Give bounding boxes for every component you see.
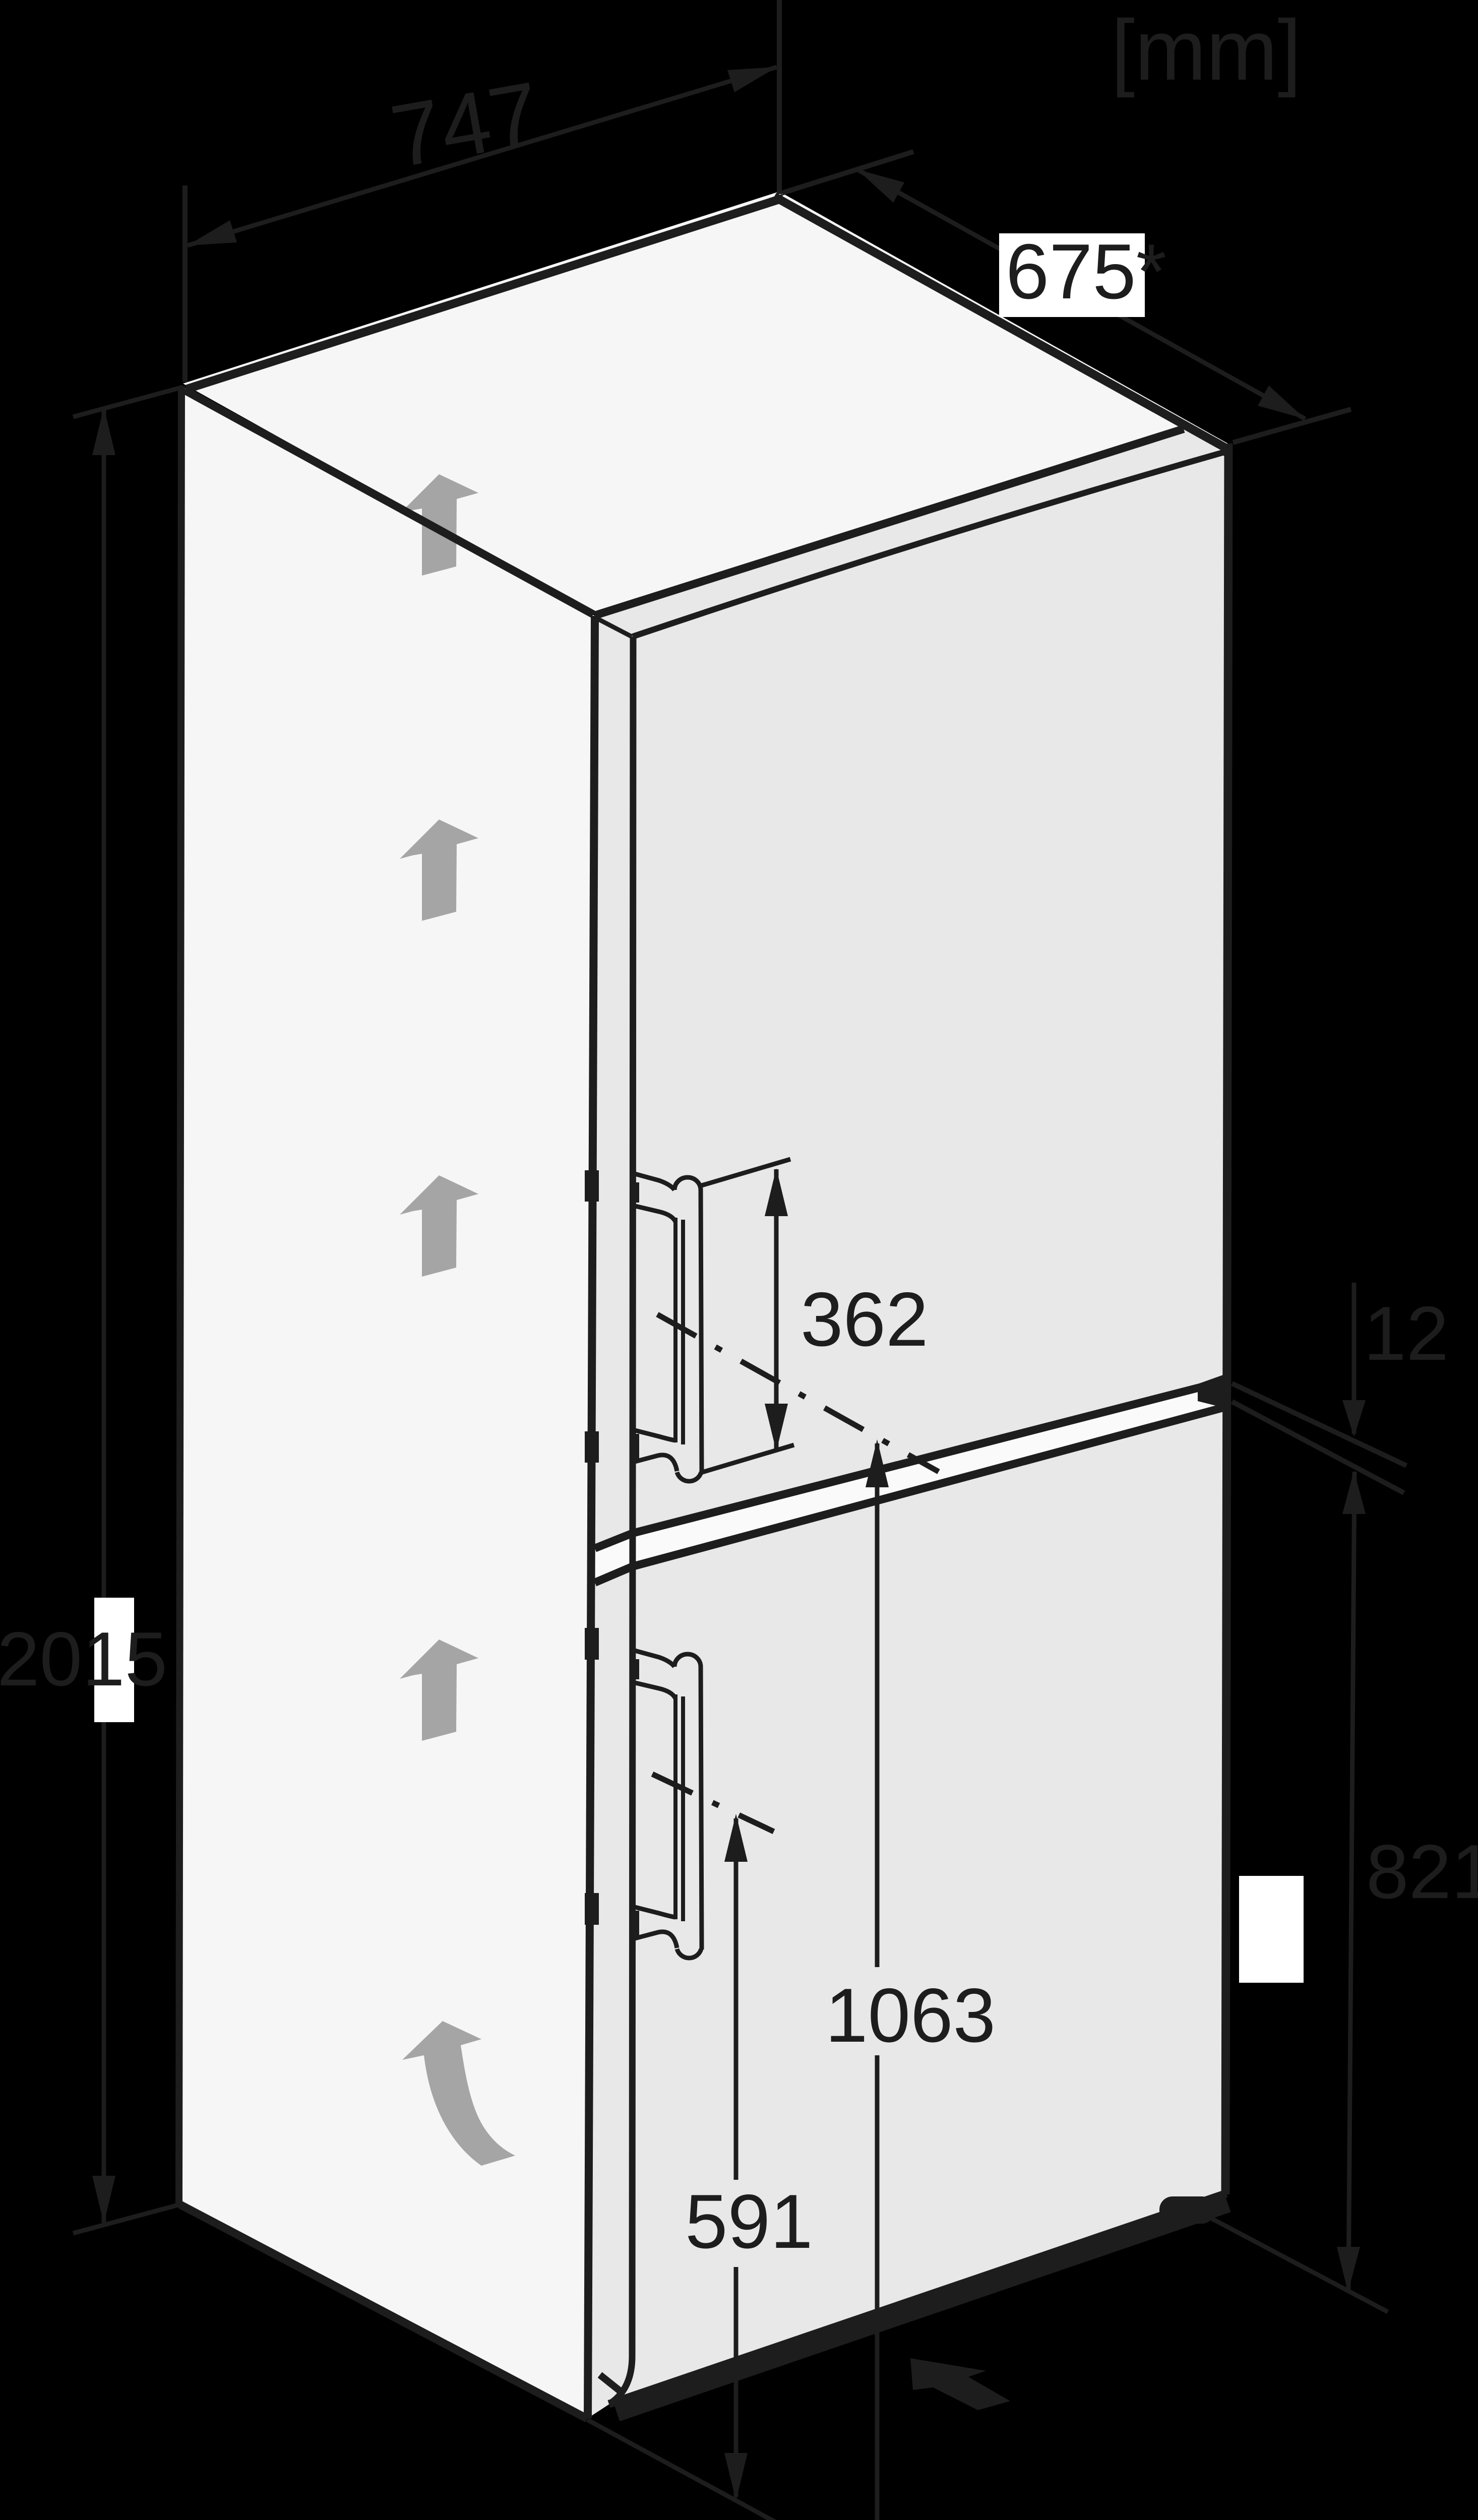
svg-text:[mm]: [mm] xyxy=(1111,3,1302,98)
svg-text:1063: 1063 xyxy=(825,1973,996,2058)
svg-text:12: 12 xyxy=(1364,1291,1449,1376)
svg-text:362: 362 xyxy=(800,1277,929,1362)
svg-text:2015: 2015 xyxy=(0,1616,167,1702)
svg-text:821: 821 xyxy=(1366,1829,1478,1915)
svg-text:675*: 675* xyxy=(1006,228,1166,315)
svg-text:591: 591 xyxy=(685,2179,813,2264)
